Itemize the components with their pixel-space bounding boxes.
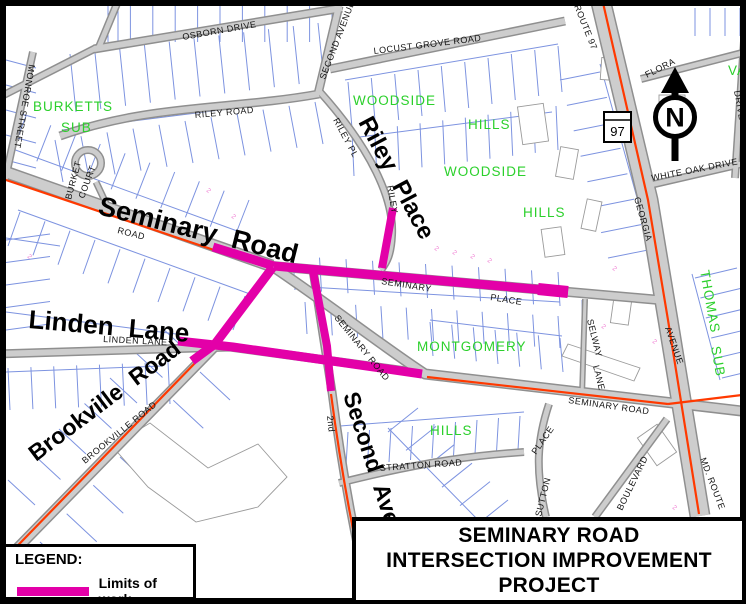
road-riley-place-fill — [320, 92, 392, 270]
subdivision-label-woodside-2: WOODSIDE — [444, 164, 527, 179]
subdivision-label-hills-1: HILLS — [468, 117, 511, 132]
subdivision-label-woodside-1: WOODSIDE — [353, 93, 436, 108]
subdivision-label-montgomery: MONTGOMERY — [417, 339, 527, 354]
legend-title: LEGEND: — [15, 551, 193, 568]
road-osborn-west-fill — [0, 48, 96, 100]
svg-text:2: 2 — [671, 504, 679, 512]
subdivision-label-thomas: THOMAS — [697, 269, 723, 334]
legend-limits-label: Limits of work — [99, 575, 193, 604]
title-line-1: SEMINARY ROAD — [458, 523, 639, 548]
project-map: OSBORN DRIVE SECOND AVENUE LOCUST GROVE … — [0, 0, 746, 604]
subdivision-label-hills-2: HILLS — [523, 205, 566, 220]
svg-text:2: 2 — [600, 323, 608, 331]
route-97-shield: 97 — [604, 112, 631, 142]
subdivision-label-thomas-sub: SUB — [708, 345, 728, 378]
svg-text:2: 2 — [651, 338, 659, 346]
road-label-stratton-road: STRATTON ROAD — [379, 457, 462, 473]
route-shield-number: 97 — [610, 124, 624, 139]
north-arrow: N — [656, 67, 695, 161]
title-line-3: PROJECT — [498, 573, 599, 598]
limits-of-work-second-ave — [313, 271, 331, 391]
road-label-2nd: 2nd — [325, 415, 337, 432]
svg-text:2: 2 — [486, 257, 494, 265]
subdivision-label-burketts-sub: SUB — [61, 120, 92, 135]
title-block: SEMINARY ROAD INTERSECTION IMPROVEMENT P… — [352, 517, 746, 604]
svg-text:2: 2 — [469, 253, 477, 261]
svg-text:2: 2 — [230, 213, 238, 221]
svg-text:2: 2 — [433, 245, 441, 253]
road-label-seminary-place-2: PLACE — [490, 292, 523, 307]
title-line-2: INTERSECTION IMPROVEMENT — [386, 548, 712, 573]
svg-text:2: 2 — [205, 187, 213, 195]
svg-text:2: 2 — [611, 265, 619, 273]
subdivision-label-hills-3: HILLS — [430, 423, 473, 438]
north-arrow-letter: N — [665, 103, 685, 133]
subdivision-label-burketts: BURKETTS — [33, 99, 113, 114]
limits-of-work-seminary-place-end — [538, 289, 568, 292]
svg-text:2: 2 — [451, 249, 459, 257]
limits-of-work-swatch — [17, 587, 89, 596]
legend-box: LEGEND: Limits of work — [3, 544, 196, 600]
road-boulevard-fill — [595, 419, 667, 517]
